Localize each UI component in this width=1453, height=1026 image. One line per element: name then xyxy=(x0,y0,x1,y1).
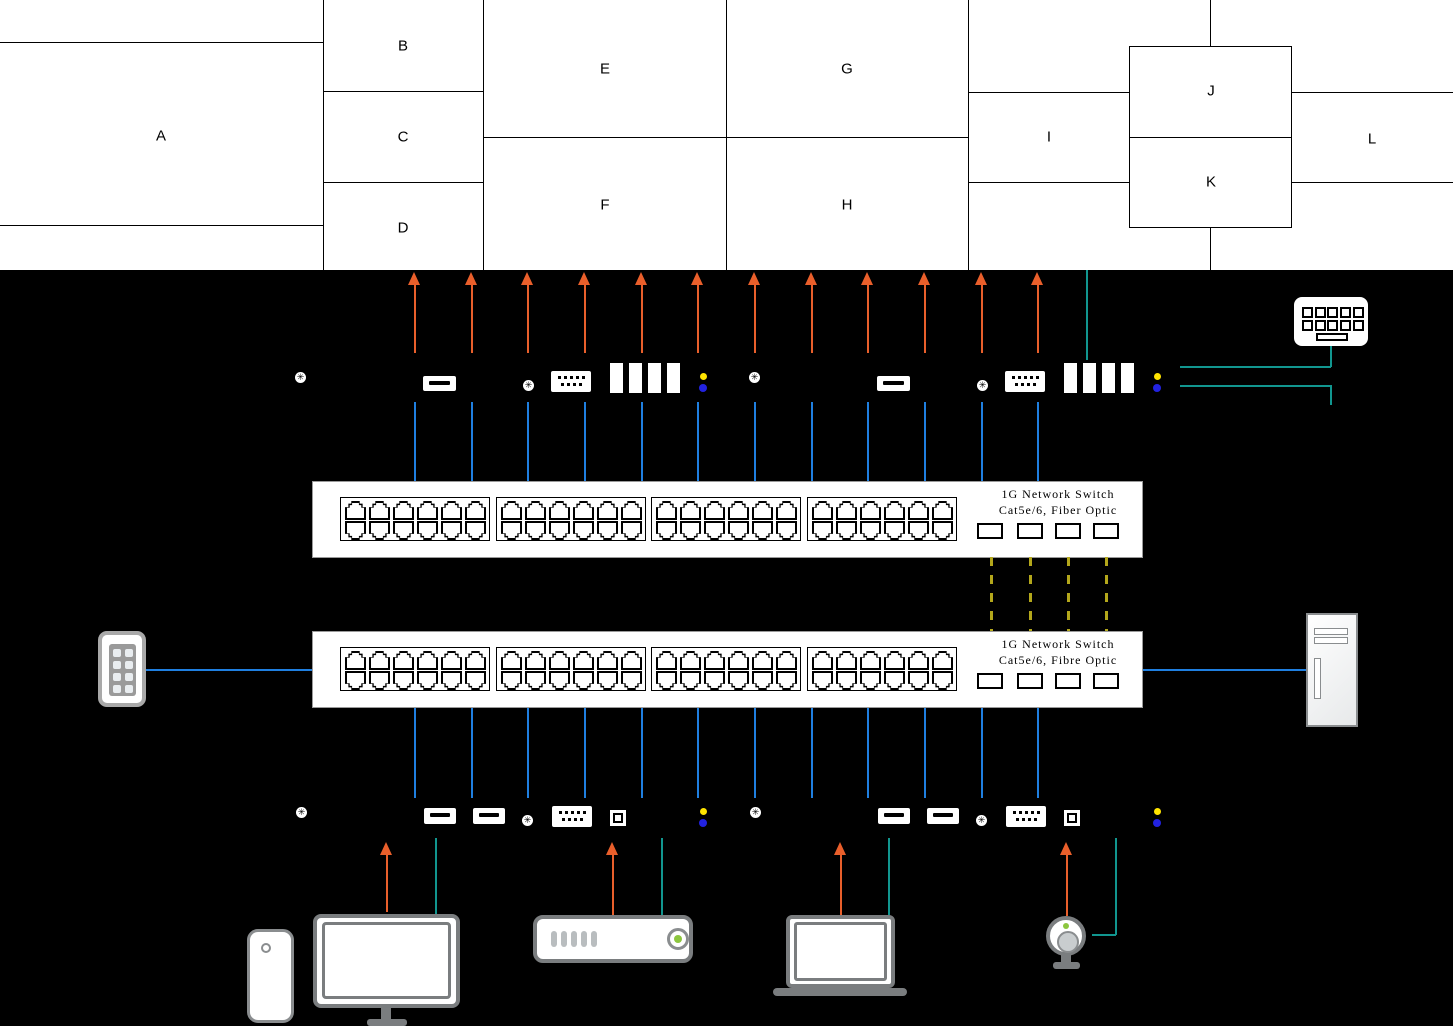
rj45-port xyxy=(597,671,618,690)
rj45-port xyxy=(752,501,773,520)
rj45-port xyxy=(525,521,546,540)
rj45-port xyxy=(525,501,546,520)
wall-region-b: B xyxy=(398,38,408,55)
wall-grid-line xyxy=(483,137,968,138)
db9-pin xyxy=(561,383,564,386)
phone-camera-dot xyxy=(261,943,271,953)
rj45-port xyxy=(752,671,773,690)
wall-region-d: D xyxy=(398,220,409,237)
keypad-button xyxy=(125,649,133,657)
keypad-button xyxy=(125,661,133,669)
rj45-port xyxy=(812,671,833,690)
video-cable-orange xyxy=(386,854,388,912)
rj45-port xyxy=(525,671,546,690)
webcam-led xyxy=(1063,923,1069,929)
decoder-2-terminal-block xyxy=(1064,363,1077,393)
rj45-port xyxy=(776,501,797,520)
rj45-port xyxy=(704,521,725,540)
rj45-port xyxy=(369,501,390,520)
decoder-1-terminal-block xyxy=(610,363,623,393)
encoder-1-screw: ✳ xyxy=(296,807,307,818)
rj45-port xyxy=(656,651,677,670)
video-arrowhead xyxy=(1060,842,1072,855)
rj45-port xyxy=(656,521,677,540)
wall-grid-line xyxy=(323,91,483,92)
rj45-port xyxy=(836,501,857,520)
db9-pin xyxy=(1019,811,1022,814)
rj45-port xyxy=(441,671,462,690)
encoder-2-hdmi-in-port xyxy=(878,808,910,824)
encoder-2-rs232-port xyxy=(1006,806,1046,827)
rj45-port xyxy=(884,651,905,670)
keypad-button xyxy=(113,649,121,657)
rj45-port xyxy=(704,501,725,520)
rj45-port xyxy=(549,671,570,690)
ethernet-cable xyxy=(1037,708,1039,798)
rj45-port xyxy=(728,501,749,520)
usb-cable xyxy=(1092,934,1116,936)
rj45-port xyxy=(932,501,953,520)
rj45-port xyxy=(812,651,833,670)
sfp-fiber-port xyxy=(977,673,1003,689)
encoder-2-hdmi-loop-port xyxy=(927,808,959,824)
rj45-port xyxy=(393,501,414,520)
usb-cable xyxy=(661,838,663,915)
db9-pin xyxy=(564,376,567,379)
keyboard-icon xyxy=(1294,297,1368,346)
rj45-port-group xyxy=(651,647,801,691)
player-vent xyxy=(581,931,587,947)
sfp-fiber-port xyxy=(1093,523,1119,539)
decoder-1-terminal-block xyxy=(629,363,642,393)
usb-cable xyxy=(1086,270,1088,360)
keyboard-key xyxy=(1327,320,1338,331)
ethernet-cable xyxy=(981,402,983,481)
video-cable-orange xyxy=(867,284,869,353)
control-keypad-icon xyxy=(98,631,146,707)
decoder-1-terminal-block xyxy=(667,363,680,393)
rj45-port xyxy=(345,671,366,690)
video-cable-orange xyxy=(527,284,529,353)
db9-pin xyxy=(1018,376,1021,379)
rj45-port xyxy=(345,651,366,670)
db9-pin xyxy=(1030,376,1033,379)
wall-grid-line xyxy=(968,182,1129,183)
encoder-1-hdmi-loop-port xyxy=(473,808,505,824)
wall-region-c: C xyxy=(398,129,409,146)
db9-pin xyxy=(1022,818,1025,821)
ethernet-cable xyxy=(414,708,416,798)
rj45-port xyxy=(501,671,522,690)
video-arrowhead xyxy=(748,272,760,285)
ethernet-cable xyxy=(924,402,926,481)
ethernet-cable xyxy=(1037,402,1039,481)
rj45-port xyxy=(860,521,881,540)
db9-pin xyxy=(1031,811,1034,814)
video-cable-orange xyxy=(1037,284,1039,353)
db9-pin xyxy=(574,818,577,821)
encoder-1-led-blue xyxy=(699,819,707,827)
sfp-fiber-port xyxy=(1017,523,1043,539)
ethernet-cable xyxy=(471,402,473,481)
wall-grid-line xyxy=(0,42,323,43)
db9-pin xyxy=(570,376,573,379)
db9-pin xyxy=(562,818,565,821)
ethernet-cable xyxy=(1143,669,1306,671)
usb-cable xyxy=(888,838,890,915)
decoder-1-screw: ✳ xyxy=(295,372,306,383)
video-arrowhead xyxy=(975,272,987,285)
decoder-1-led-yellow xyxy=(700,373,707,380)
decoder-2-screw: ✳ xyxy=(749,372,760,383)
keypad-button xyxy=(113,661,121,669)
wall-region-k: K xyxy=(1206,174,1216,191)
fiber-cable xyxy=(1029,557,1032,631)
ethernet-cable xyxy=(811,708,813,798)
rj45-port xyxy=(441,521,462,540)
rj45-port xyxy=(776,671,797,690)
rj45-port xyxy=(908,651,929,670)
rj45-port xyxy=(393,521,414,540)
rj45-port-group xyxy=(340,497,490,541)
db9-pin xyxy=(577,811,580,814)
laptop-icon xyxy=(786,915,895,988)
video-arrowhead xyxy=(635,272,647,285)
ethernet-cable xyxy=(527,402,529,481)
ethernet-cable xyxy=(697,708,699,798)
video-arrowhead xyxy=(805,272,817,285)
webcam-lens xyxy=(1057,931,1079,953)
video-arrowhead xyxy=(578,272,590,285)
rj45-port xyxy=(812,521,833,540)
pc-tower-icon xyxy=(1306,613,1358,727)
rj45-port xyxy=(776,651,797,670)
rj45-port xyxy=(597,651,618,670)
rj45-port xyxy=(932,651,953,670)
wall-grid-line xyxy=(323,182,483,183)
db9-pin xyxy=(1027,383,1030,386)
video-arrowhead xyxy=(918,272,930,285)
rj45-port xyxy=(573,671,594,690)
rj45-port xyxy=(417,501,438,520)
rj45-port xyxy=(369,671,390,690)
wall-grid-line xyxy=(968,92,1129,93)
rj45-port xyxy=(417,521,438,540)
rj45-port xyxy=(932,671,953,690)
rj45-port xyxy=(656,671,677,690)
wall-region-a: A xyxy=(156,128,166,145)
rj45-port xyxy=(465,651,486,670)
rj45-port xyxy=(908,671,929,690)
rj45-port xyxy=(680,521,701,540)
video-arrowhead xyxy=(861,272,873,285)
laptop-base xyxy=(773,988,907,996)
pc-drive-bay xyxy=(1314,628,1348,635)
rj45-port-group xyxy=(496,497,646,541)
sfp-fiber-port xyxy=(1055,523,1081,539)
monitor-screen xyxy=(322,922,451,999)
decoder-1-screw: ✳ xyxy=(523,380,534,391)
video-cable-orange xyxy=(811,284,813,353)
video-cable-orange xyxy=(414,284,416,353)
media-player-icon xyxy=(533,915,693,963)
pc-front-slot xyxy=(1314,658,1321,699)
rj45-port xyxy=(704,671,725,690)
wall-grid-line xyxy=(1292,182,1453,183)
rj45-port xyxy=(501,501,522,520)
rj45-port xyxy=(752,521,773,540)
encoder-2-usb-port xyxy=(1064,810,1080,826)
decoder-2-led-yellow xyxy=(1154,373,1161,380)
rj45-port xyxy=(860,671,881,690)
rj45-port xyxy=(393,671,414,690)
usb-cable xyxy=(1180,385,1331,387)
rj45-port xyxy=(812,501,833,520)
db9-pin xyxy=(1025,811,1028,814)
rj45-port xyxy=(621,521,642,540)
rj45-port xyxy=(525,651,546,670)
wall-grid-line xyxy=(1210,227,1211,270)
rj45-port-group xyxy=(340,647,490,691)
rj45-port xyxy=(836,651,857,670)
rj45-port xyxy=(656,501,677,520)
db9-pin xyxy=(559,811,562,814)
rj45-port xyxy=(884,671,905,690)
wall-region-i: I xyxy=(1047,129,1051,146)
ethernet-cable xyxy=(867,708,869,798)
decoder-2-hdmi-out-port xyxy=(877,376,910,391)
rj45-port xyxy=(441,651,462,670)
rj45-port xyxy=(621,671,642,690)
db9-pin xyxy=(1024,376,1027,379)
video-arrowhead xyxy=(380,842,392,855)
ethernet-cable xyxy=(146,669,312,671)
rj45-port xyxy=(345,501,366,520)
video-wall: A B C D E F G H I L J K xyxy=(0,0,1453,270)
rj45-port xyxy=(776,521,797,540)
decoder-2-screw: ✳ xyxy=(977,380,988,391)
db9-pin xyxy=(576,376,579,379)
ethernet-cable xyxy=(471,708,473,798)
db9-pin xyxy=(1037,811,1040,814)
ethernet-cable xyxy=(924,708,926,798)
rj45-port xyxy=(369,651,390,670)
db9-pin xyxy=(558,376,561,379)
wall-region-h: H xyxy=(842,197,853,214)
keyboard-key xyxy=(1340,307,1351,318)
wall-grid-line xyxy=(1292,92,1453,93)
fiber-cable xyxy=(1067,557,1070,631)
rj45-port xyxy=(680,501,701,520)
keyboard-key xyxy=(1327,307,1338,318)
decoder-2-rs232-port xyxy=(1005,371,1045,392)
rj45-port xyxy=(884,521,905,540)
rj45-port xyxy=(728,671,749,690)
wall-region-l: L xyxy=(1368,131,1376,148)
ethernet-cable xyxy=(641,708,643,798)
video-arrowhead xyxy=(465,272,477,285)
decoder-1-led-blue xyxy=(699,384,707,392)
db9-pin xyxy=(1021,383,1024,386)
decoder-2-terminal-block xyxy=(1083,363,1096,393)
wall-region-g: G xyxy=(841,61,853,78)
webcam-base xyxy=(1053,962,1080,969)
rj45-port xyxy=(728,651,749,670)
monitor-base xyxy=(367,1019,407,1026)
video-cable-orange xyxy=(754,284,756,353)
encoder-1-usb-port xyxy=(610,810,626,826)
encoder-2-led-yellow xyxy=(1154,808,1161,815)
video-arrowhead xyxy=(1031,272,1043,285)
switch-bottom-spec: Cat5e/6, Fibre Optic xyxy=(958,652,1158,668)
wall-grid-line xyxy=(0,225,323,226)
usb-cable xyxy=(1330,346,1332,367)
video-arrowhead xyxy=(606,842,618,855)
rj45-port xyxy=(621,651,642,670)
keypad-button xyxy=(113,685,121,693)
encoder-1-rs232-port xyxy=(552,806,592,827)
ethernet-cable xyxy=(697,402,699,481)
rj45-port xyxy=(597,521,618,540)
ethernet-cable xyxy=(641,402,643,481)
rj45-port xyxy=(621,501,642,520)
switch-bottom-name: 1G Network Switch xyxy=(958,636,1158,652)
ethernet-cable xyxy=(867,402,869,481)
encoder-2-screw: ✳ xyxy=(976,815,987,826)
rj45-port xyxy=(728,521,749,540)
video-cable-orange xyxy=(840,854,842,915)
player-vent xyxy=(571,931,577,947)
video-arrowhead xyxy=(691,272,703,285)
encoder-2-screw: ✳ xyxy=(750,807,761,818)
ethernet-cable xyxy=(811,402,813,481)
rj45-port xyxy=(908,501,929,520)
ethernet-cable xyxy=(527,708,529,798)
rj45-port xyxy=(345,521,366,540)
keypad-button xyxy=(125,685,133,693)
webcam-icon xyxy=(1046,916,1086,956)
rj45-port xyxy=(573,521,594,540)
sfp-fiber-port xyxy=(1017,673,1043,689)
rj45-port xyxy=(465,501,486,520)
rj45-port xyxy=(680,671,701,690)
wall-region-j: J xyxy=(1207,83,1215,100)
player-vent xyxy=(561,931,567,947)
laptop-screen xyxy=(794,922,887,981)
rj45-port xyxy=(417,671,438,690)
rj45-port xyxy=(752,651,773,670)
rj45-port xyxy=(549,501,570,520)
video-cable-orange xyxy=(471,284,473,353)
decoder-2-led-blue xyxy=(1153,384,1161,392)
switch-top-name: 1G Network Switch xyxy=(958,486,1158,502)
decoder-1-rs232-port xyxy=(551,371,591,392)
wall-region-f: F xyxy=(600,197,609,214)
ethernet-cable xyxy=(584,708,586,798)
wall-grid-line xyxy=(483,0,484,270)
av-over-ip-network-diagram: A B C D E F G H I L J K 1G Network Switc… xyxy=(0,0,1453,1026)
rj45-port xyxy=(501,651,522,670)
db9-pin xyxy=(1028,818,1031,821)
db9-pin xyxy=(571,811,574,814)
keyboard-key xyxy=(1340,320,1351,331)
video-cable-orange xyxy=(924,284,926,353)
rj45-port xyxy=(441,501,462,520)
rj45-port xyxy=(860,651,881,670)
wall-grid-line xyxy=(968,0,969,270)
rj45-port xyxy=(573,501,594,520)
decoder-2-terminal-block xyxy=(1121,363,1134,393)
rj45-port xyxy=(836,671,857,690)
fiber-cable xyxy=(990,557,993,631)
ethernet-cable xyxy=(754,708,756,798)
ethernet-cable xyxy=(754,402,756,481)
rj45-port-group xyxy=(807,497,957,541)
db9-pin xyxy=(1016,818,1019,821)
ethernet-cable xyxy=(414,402,416,481)
keyboard-key xyxy=(1315,320,1326,331)
wall-grid-line xyxy=(323,0,324,270)
rj45-port xyxy=(465,521,486,540)
rj45-port-group xyxy=(807,647,957,691)
rj45-port xyxy=(908,521,929,540)
rj45-port xyxy=(836,521,857,540)
ethernet-cable xyxy=(584,402,586,481)
wall-grid-line xyxy=(1210,0,1211,46)
db9-pin xyxy=(1034,818,1037,821)
rj45-port xyxy=(369,521,390,540)
db9-pin xyxy=(1036,376,1039,379)
player-vent xyxy=(591,931,597,947)
db9-pin xyxy=(565,811,568,814)
encoder-1-screw: ✳ xyxy=(522,815,533,826)
smartphone-icon xyxy=(247,929,294,1023)
db9-pin xyxy=(1013,811,1016,814)
keyboard-key xyxy=(1302,307,1313,318)
rj45-port xyxy=(549,521,570,540)
rj45-port xyxy=(417,651,438,670)
db9-pin xyxy=(573,383,576,386)
rj45-port xyxy=(465,671,486,690)
player-power-button xyxy=(667,928,689,950)
usb-cable xyxy=(1330,385,1332,405)
rj45-port xyxy=(704,651,725,670)
sfp-fiber-port xyxy=(1093,673,1119,689)
rj45-port xyxy=(597,501,618,520)
decoder-1-terminal-block xyxy=(648,363,661,393)
rj45-port xyxy=(932,521,953,540)
decoder-2-terminal-block xyxy=(1102,363,1115,393)
db9-pin xyxy=(580,818,583,821)
rj45-port xyxy=(393,651,414,670)
keyboard-key xyxy=(1353,320,1364,331)
keyboard-key xyxy=(1315,307,1326,318)
player-vent xyxy=(551,931,557,947)
video-arrowhead xyxy=(408,272,420,285)
db9-pin xyxy=(568,818,571,821)
rj45-port xyxy=(549,651,570,670)
keyboard-key xyxy=(1302,320,1313,331)
fiber-cable xyxy=(1105,557,1108,631)
video-cable-orange xyxy=(612,854,614,915)
rj45-port-group xyxy=(651,497,801,541)
wall-region-e: E xyxy=(600,61,610,78)
db9-pin xyxy=(1033,383,1036,386)
desktop-monitor-icon xyxy=(313,914,460,1008)
sfp-fiber-port xyxy=(1055,673,1081,689)
keypad-button xyxy=(113,673,121,681)
rj45-port xyxy=(573,651,594,670)
